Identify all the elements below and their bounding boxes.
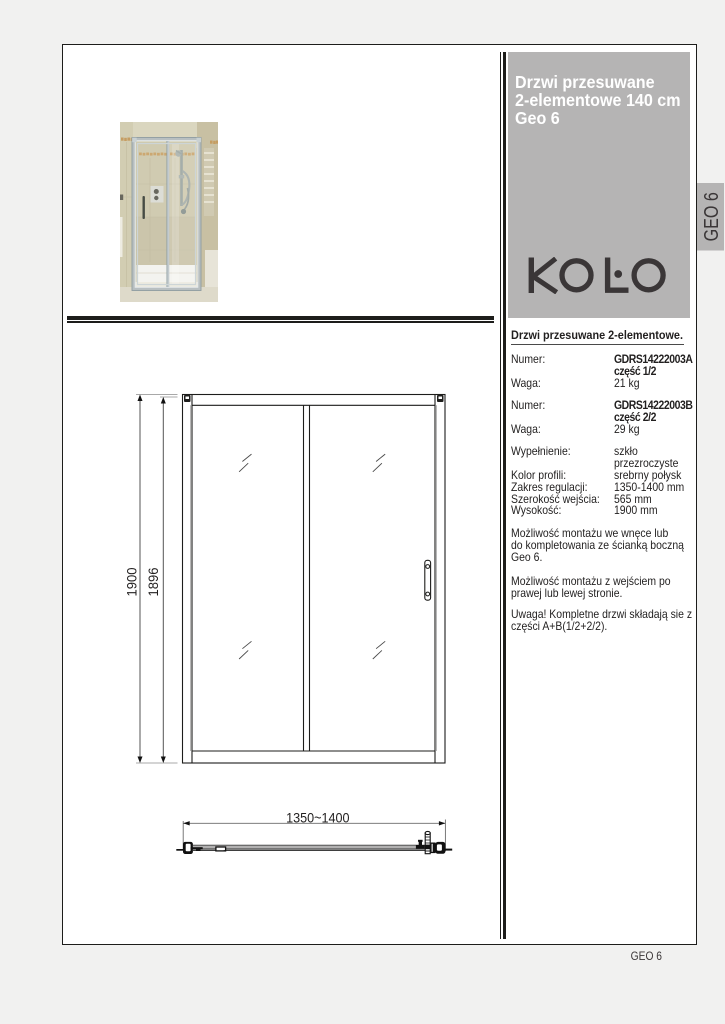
svg-text:1900: 1900	[124, 567, 140, 596]
svg-text:1896: 1896	[145, 567, 161, 596]
svg-text:GEO 6: GEO 6	[701, 192, 723, 241]
